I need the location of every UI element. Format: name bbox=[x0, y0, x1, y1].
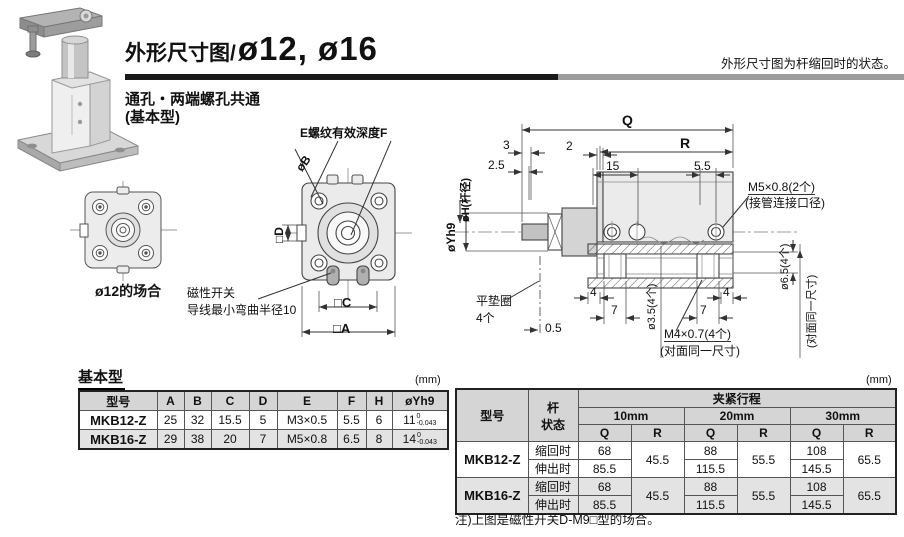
dim-4-right-label: 4 bbox=[723, 285, 730, 299]
pilot-dia-label: øYh9 bbox=[444, 223, 458, 252]
dim-0-5-label: 0.5 bbox=[545, 321, 562, 335]
stroke-table-unit: (mm) bbox=[866, 374, 892, 386]
rod-dia-label: øH(杆径) bbox=[457, 178, 473, 222]
side-view bbox=[455, 124, 803, 358]
cell-r30: 65.5 bbox=[843, 478, 896, 515]
cell-a: 29 bbox=[157, 430, 184, 450]
dim-7-right-label: 7 bbox=[700, 303, 707, 317]
tolerance-lower: -0.043 bbox=[417, 439, 437, 447]
model-cell: MKB12-Z bbox=[456, 442, 528, 478]
small-front-view bbox=[70, 181, 177, 281]
small-view-caption: ø12的场合 bbox=[95, 284, 161, 298]
col-f: F bbox=[337, 391, 366, 411]
col-h: H bbox=[366, 391, 392, 411]
title-rule-gray bbox=[558, 74, 904, 80]
cell-q30-retract: 108 bbox=[790, 442, 843, 460]
col-b: B bbox=[184, 391, 211, 411]
tolerance-upper: 0 bbox=[417, 432, 437, 440]
basic-header-row: 型号 A B C D E F H øYh9 bbox=[79, 391, 448, 411]
catalog-page: 外形尺寸图/ ø12, ø16 外形尺寸图为杆缩回时的状态。 通孔・两端螺孔共通… bbox=[0, 0, 904, 537]
rod-state-line2: 状态 bbox=[531, 416, 576, 433]
cell-d: 5 bbox=[249, 411, 277, 430]
col-yh9: øYh9 bbox=[392, 391, 448, 411]
dim-q-label: Q bbox=[622, 112, 633, 128]
cell-q30-retract: 108 bbox=[790, 478, 843, 496]
table-row: MKB16-Z 缩回时 68 45.5 88 55.5 108 65.5 bbox=[456, 478, 896, 496]
model-cell: MKB12-Z bbox=[79, 411, 157, 430]
cell-e: M3×0.5 bbox=[277, 411, 337, 430]
title-rule-black bbox=[125, 74, 558, 80]
dim-15-label: 15 bbox=[606, 159, 619, 173]
cell-r20: 55.5 bbox=[737, 478, 790, 515]
col-r20: R bbox=[737, 425, 790, 442]
col-d: D bbox=[249, 391, 277, 411]
tolerance-lower: -0.043 bbox=[417, 420, 437, 428]
table-row: MKB12-Z 25 32 15.5 5 M3×0.5 5.5 6 110-0.… bbox=[79, 411, 448, 430]
col-stroke-10: 10mm bbox=[578, 408, 684, 425]
dim-a-label: □A bbox=[333, 321, 350, 336]
rod-state-note: 外形尺寸图为杆缩回时的状态。 bbox=[721, 53, 896, 72]
cell-yh9: 110-0.043 bbox=[392, 411, 448, 430]
dim-d-label: □D bbox=[272, 227, 286, 243]
table-row: MKB16-Z 29 38 20 7 M5×0.8 6.5 8 140-0.04… bbox=[79, 430, 448, 450]
cell-r20: 55.5 bbox=[737, 442, 790, 478]
rod-state-line1: 杆 bbox=[531, 399, 576, 416]
dim-7-left-label: 7 bbox=[611, 303, 618, 317]
tolerance-nominal: 14 bbox=[403, 432, 416, 446]
col-clamp-stroke: 夹紧行程 bbox=[578, 389, 896, 408]
dim-2-label: 2 bbox=[566, 139, 573, 153]
dim-2-5-label: 2.5 bbox=[488, 158, 505, 172]
col-rod-state: 杆状态 bbox=[528, 389, 578, 442]
same-dim-right-label: (对面同一尺寸) bbox=[803, 275, 819, 348]
port-thread-label: M5×0.8(2个) bbox=[748, 180, 815, 195]
cell-c: 15.5 bbox=[211, 411, 249, 430]
thread-depth-label: E螺纹有效深度F bbox=[300, 126, 387, 140]
cell-a: 25 bbox=[157, 411, 184, 430]
cell-r10: 45.5 bbox=[631, 442, 684, 478]
hole-dia-35-label: ø3.5(4个) bbox=[643, 284, 659, 330]
subtitle-line2: (基本型) bbox=[125, 106, 180, 127]
product-photo bbox=[18, 8, 138, 171]
rod-state-cell: 伸出时 bbox=[528, 460, 578, 478]
col-model: 型号 bbox=[79, 391, 157, 411]
dim-4-left-label: 4 bbox=[590, 285, 597, 299]
washer-label: 平垫圈 bbox=[476, 294, 512, 308]
cell-c: 20 bbox=[211, 430, 249, 450]
stroke-table-section: 型号 杆状态 夹紧行程 10mm 20mm 30mm Q R Q R Q R M… bbox=[455, 388, 897, 515]
cell-q10-retract: 68 bbox=[578, 478, 631, 496]
cell-f: 6.5 bbox=[337, 430, 366, 450]
rod-state-cell: 缩回时 bbox=[528, 442, 578, 460]
col-e: E bbox=[277, 391, 337, 411]
title-bore-sizes: ø12, ø16 bbox=[238, 30, 378, 68]
cell-q20-extend: 115.5 bbox=[684, 460, 737, 478]
cell-q30-extend: 145.5 bbox=[790, 496, 843, 515]
col-model: 型号 bbox=[456, 389, 528, 442]
cell-q20-retract: 88 bbox=[684, 478, 737, 496]
col-stroke-30: 30mm bbox=[790, 408, 896, 425]
magnetic-switch-note: 磁性开关 bbox=[187, 286, 235, 300]
basic-dimensions-table: 型号 A B C D E F H øYh9 MKB12-Z 25 32 15.5… bbox=[78, 390, 449, 450]
dim-3-label: 3 bbox=[503, 138, 510, 152]
col-q20: Q bbox=[684, 425, 737, 442]
hole-dia-65-label: ø6.5(4个) bbox=[776, 244, 792, 290]
title-prefix: 外形尺寸图/ bbox=[125, 37, 236, 67]
col-r10: R bbox=[631, 425, 684, 442]
model-cell: MKB16-Z bbox=[79, 430, 157, 450]
cell-r30: 65.5 bbox=[843, 442, 896, 478]
table-footnote: 注)上图是磁性开关D-M9□型的场合。 bbox=[455, 509, 660, 528]
col-a: A bbox=[157, 391, 184, 411]
col-q10: Q bbox=[578, 425, 631, 442]
col-r30: R bbox=[843, 425, 896, 442]
dim-c-label: □C bbox=[334, 295, 351, 310]
col-c: C bbox=[211, 391, 249, 411]
cell-e: M5×0.8 bbox=[277, 430, 337, 450]
cell-h: 6 bbox=[366, 411, 392, 430]
port-size-label: (接管连接口径) bbox=[745, 196, 825, 210]
cell-q30-extend: 145.5 bbox=[790, 460, 843, 478]
table-row: MKB12-Z 缩回时 68 45.5 88 55.5 108 65.5 bbox=[456, 442, 896, 460]
m4-thread-label: M4×0.7(4个) bbox=[664, 327, 731, 342]
dim-5-5-label: 5.5 bbox=[694, 159, 711, 173]
cell-d: 7 bbox=[249, 430, 277, 450]
lead-wire-bend-note: 导线最小弯曲半径10 bbox=[187, 303, 296, 317]
dim-r-label: R bbox=[680, 135, 690, 151]
clamp-stroke-table: 型号 杆状态 夹紧行程 10mm 20mm 30mm Q R Q R Q R M… bbox=[455, 388, 897, 515]
tolerance-upper: 0 bbox=[417, 413, 437, 421]
cell-f: 5.5 bbox=[337, 411, 366, 430]
cell-q20-extend: 115.5 bbox=[684, 496, 737, 515]
basic-table-title: 基本型 bbox=[78, 366, 125, 390]
cell-yh9: 140-0.043 bbox=[392, 430, 448, 450]
cell-q20-retract: 88 bbox=[684, 442, 737, 460]
page-title: 外形尺寸图/ ø12, ø16 bbox=[125, 30, 378, 68]
cell-b: 38 bbox=[184, 430, 211, 450]
basic-table-unit: (mm) bbox=[415, 374, 441, 386]
same-dim-bottom-label: (对面同一尺寸) bbox=[660, 344, 740, 358]
washer-qty-label: 4个 bbox=[476, 311, 495, 325]
col-stroke-20: 20mm bbox=[684, 408, 790, 425]
basic-table-section: 基本型 型号 A B C D E F H øYh9 MKB12-Z 25 32 … bbox=[78, 366, 449, 450]
cell-q10-extend: 85.5 bbox=[578, 460, 631, 478]
stroke-header-row1: 型号 杆状态 夹紧行程 bbox=[456, 389, 896, 408]
cell-q10-retract: 68 bbox=[578, 442, 631, 460]
rod-state-cell: 缩回时 bbox=[528, 478, 578, 496]
cell-h: 8 bbox=[366, 430, 392, 450]
col-q30: Q bbox=[790, 425, 843, 442]
tolerance-nominal: 11 bbox=[403, 413, 415, 427]
cell-b: 32 bbox=[184, 411, 211, 430]
